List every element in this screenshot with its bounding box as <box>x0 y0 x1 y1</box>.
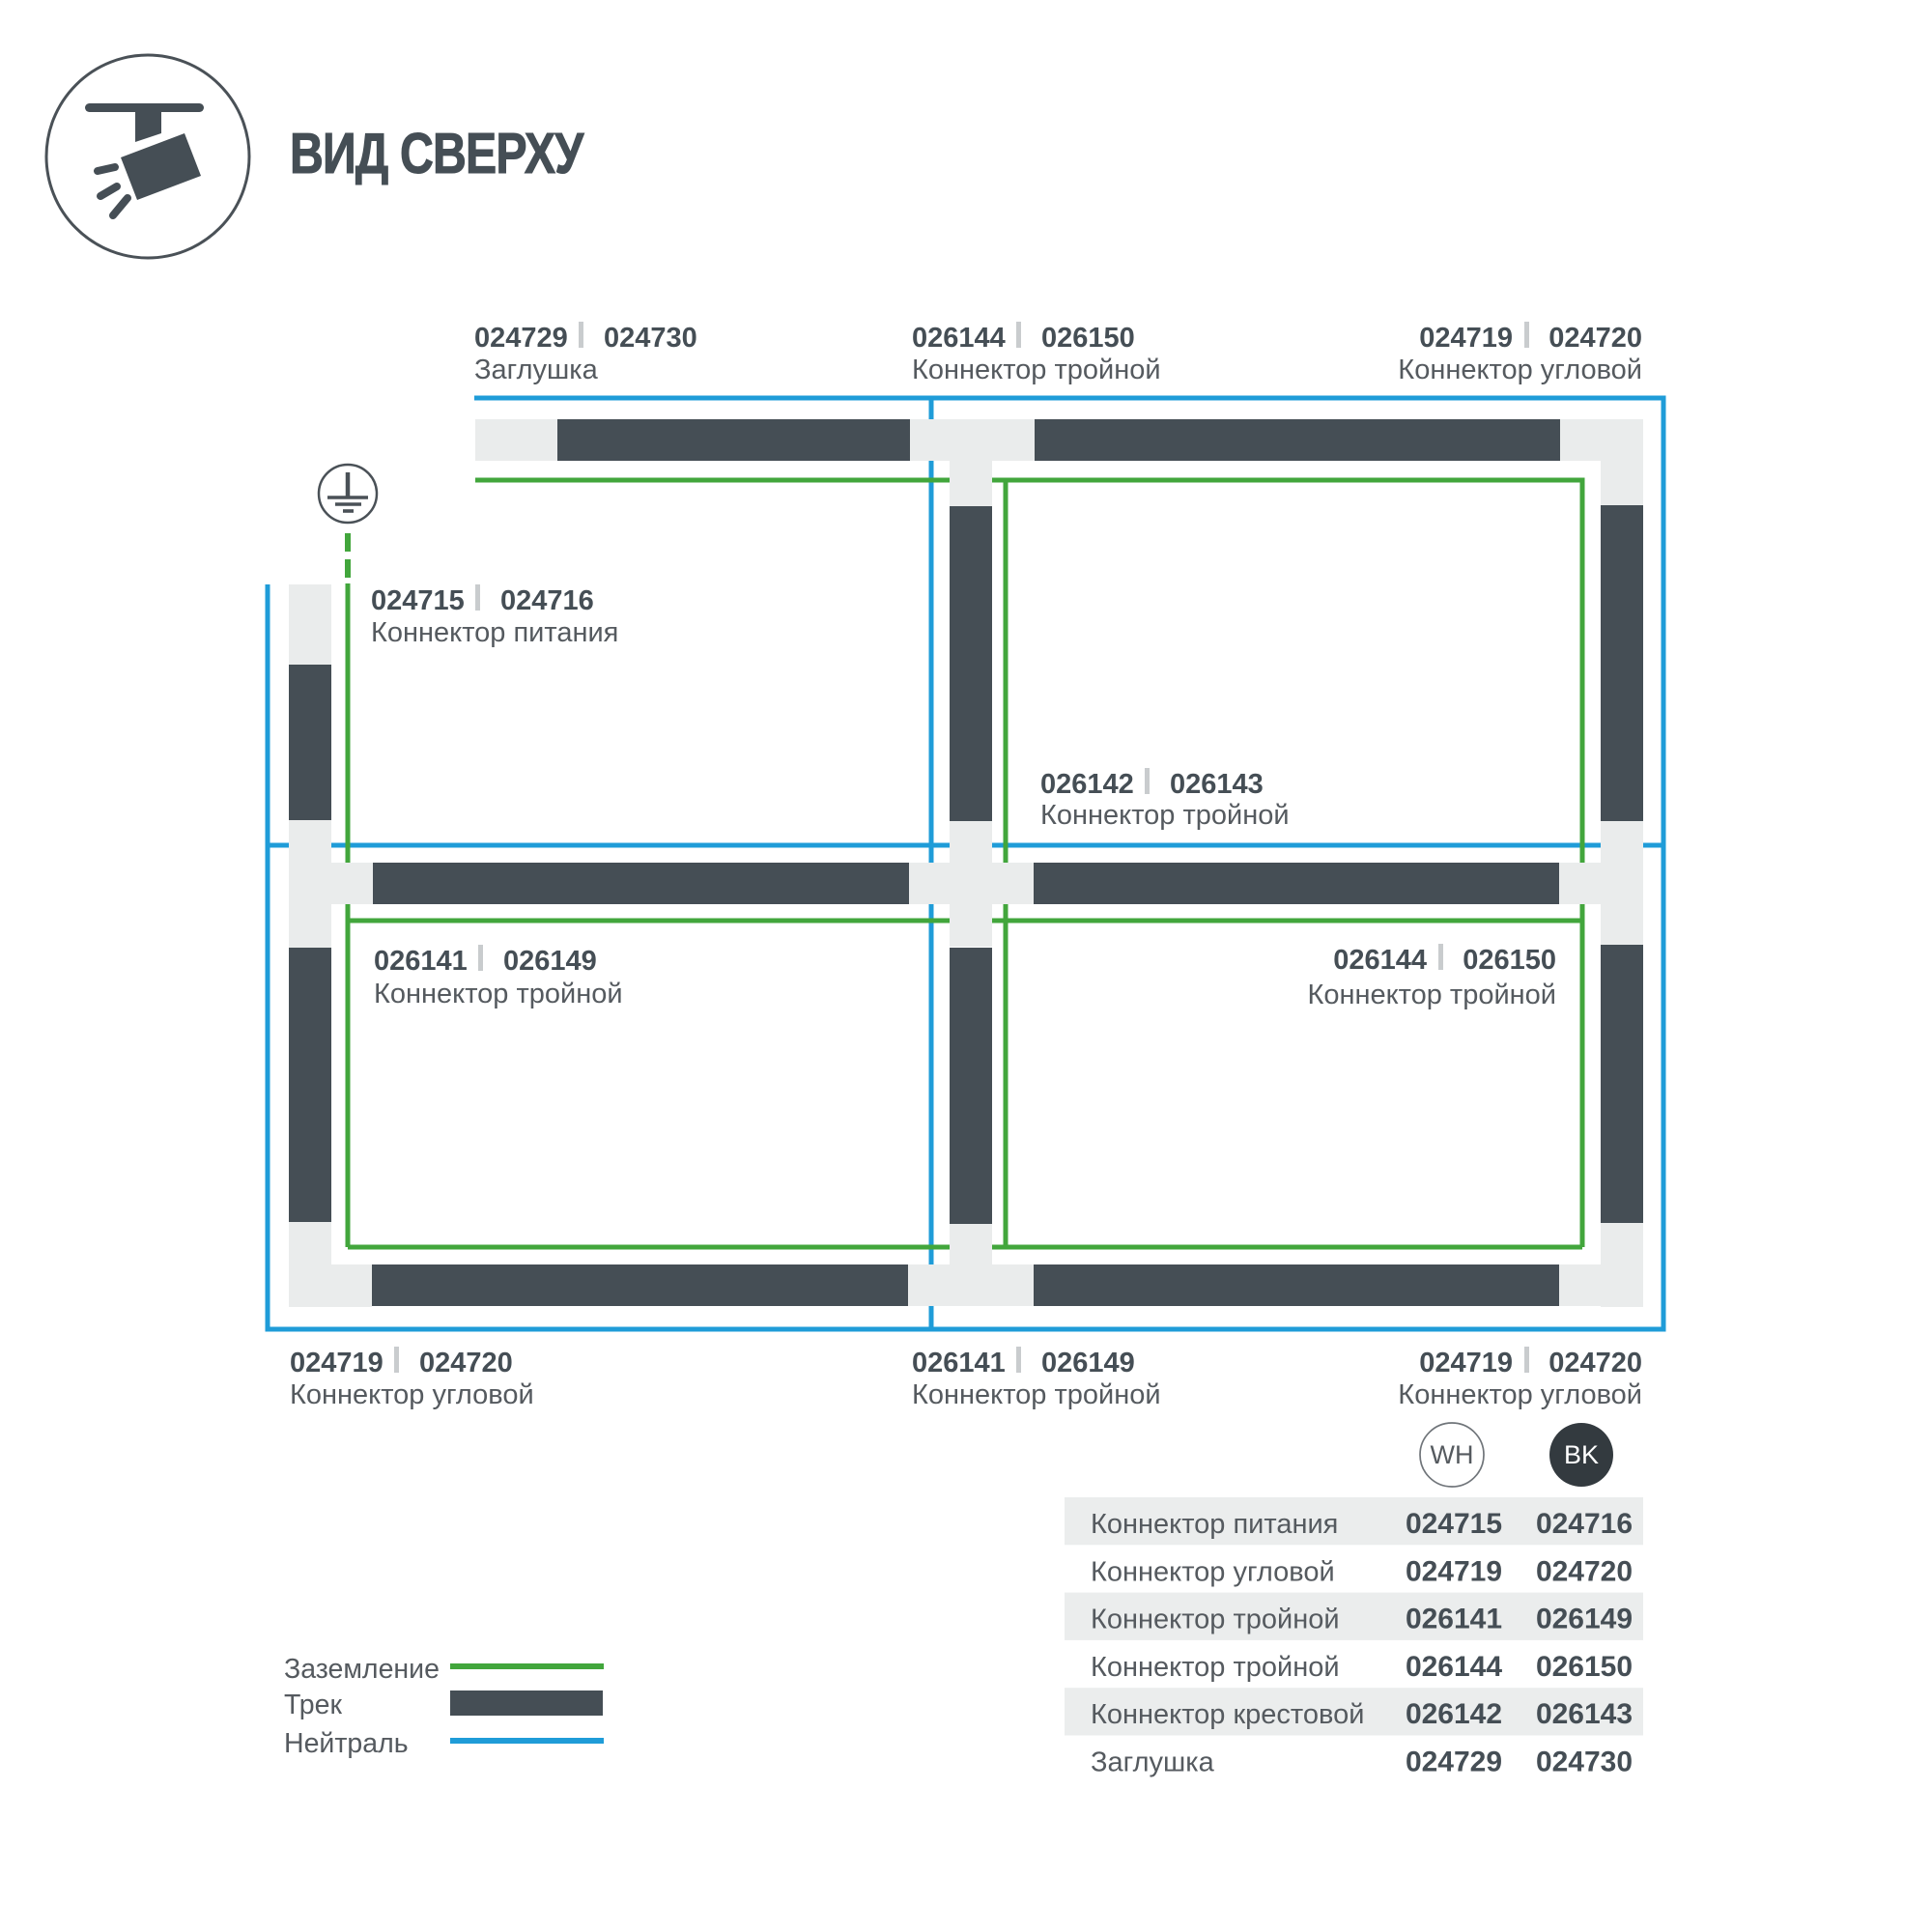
svg-text:Заглушка: Заглушка <box>474 355 599 385</box>
svg-text:026144: 026144 <box>1406 1651 1502 1683</box>
svg-text:026149: 026149 <box>503 946 597 977</box>
svg-text:Коннектор тройной: Коннектор тройной <box>1040 800 1290 831</box>
svg-text:026150: 026150 <box>1536 1651 1633 1683</box>
svg-text:024729: 024729 <box>1406 1747 1502 1778</box>
svg-text:Коннектор угловой: Коннектор угловой <box>1398 355 1642 385</box>
svg-text:026144: 026144 <box>912 323 1006 354</box>
svg-text:Коннектор тройной: Коннектор тройной <box>1307 980 1556 1010</box>
svg-text:ВИД СВЕРХУ: ВИД СВЕРХУ <box>290 122 585 185</box>
svg-text:026141: 026141 <box>374 946 468 977</box>
svg-text:Коннектор питания: Коннектор питания <box>371 617 618 648</box>
svg-text:026150: 026150 <box>1463 945 1556 976</box>
svg-text:Нейтраль: Нейтраль <box>284 1728 409 1759</box>
svg-text:Коннектор тройной: Коннектор тройной <box>1091 1605 1340 1635</box>
svg-text:026144: 026144 <box>1333 945 1427 976</box>
svg-text:024730: 024730 <box>1536 1747 1633 1778</box>
svg-text:024719: 024719 <box>1419 1348 1513 1378</box>
svg-text:Коннектор тройной: Коннектор тройной <box>912 355 1161 385</box>
svg-text:024715: 024715 <box>1406 1508 1502 1540</box>
svg-text:024716: 024716 <box>1536 1508 1633 1540</box>
svg-text:024719: 024719 <box>290 1348 384 1378</box>
svg-text:024715: 024715 <box>371 585 465 616</box>
svg-text:Коннектор крестовой: Коннектор крестовой <box>1091 1699 1364 1730</box>
svg-text:Коннектор угловой: Коннектор угловой <box>1091 1556 1335 1587</box>
svg-text:026143: 026143 <box>1170 769 1264 800</box>
svg-text:026142: 026142 <box>1040 769 1134 800</box>
svg-text:Коннектор тройной: Коннектор тройной <box>912 1379 1161 1410</box>
svg-text:026142: 026142 <box>1406 1698 1502 1730</box>
svg-text:024720: 024720 <box>1548 1348 1642 1378</box>
svg-text:BK: BK <box>1564 1440 1599 1469</box>
svg-text:024716: 024716 <box>500 585 594 616</box>
svg-text:Заземление: Заземление <box>284 1654 440 1685</box>
svg-text:024719: 024719 <box>1419 323 1513 354</box>
svg-text:024719: 024719 <box>1406 1555 1502 1587</box>
svg-text:024720: 024720 <box>419 1348 513 1378</box>
svg-text:024720: 024720 <box>1536 1555 1633 1587</box>
svg-text:Коннектор питания: Коннектор питания <box>1091 1509 1338 1540</box>
svg-text:024729: 024729 <box>474 323 568 354</box>
svg-text:024730: 024730 <box>604 323 697 354</box>
svg-text:Коннектор угловой: Коннектор угловой <box>1398 1379 1642 1410</box>
svg-text:WH: WH <box>1431 1440 1474 1469</box>
svg-text:Заглушка: Заглушка <box>1091 1747 1215 1778</box>
svg-text:026149: 026149 <box>1041 1348 1135 1378</box>
svg-text:026150: 026150 <box>1041 323 1135 354</box>
svg-text:024720: 024720 <box>1548 323 1642 354</box>
svg-text:026143: 026143 <box>1536 1698 1633 1730</box>
svg-text:Трек: Трек <box>284 1690 343 1720</box>
svg-text:Коннектор угловой: Коннектор угловой <box>290 1379 534 1410</box>
svg-text:026141: 026141 <box>912 1348 1006 1378</box>
svg-text:Коннектор тройной: Коннектор тройной <box>1091 1652 1340 1683</box>
svg-text:026149: 026149 <box>1536 1604 1633 1635</box>
svg-text:026141: 026141 <box>1406 1604 1502 1635</box>
svg-text:Коннектор тройной: Коннектор тройной <box>374 979 623 1009</box>
